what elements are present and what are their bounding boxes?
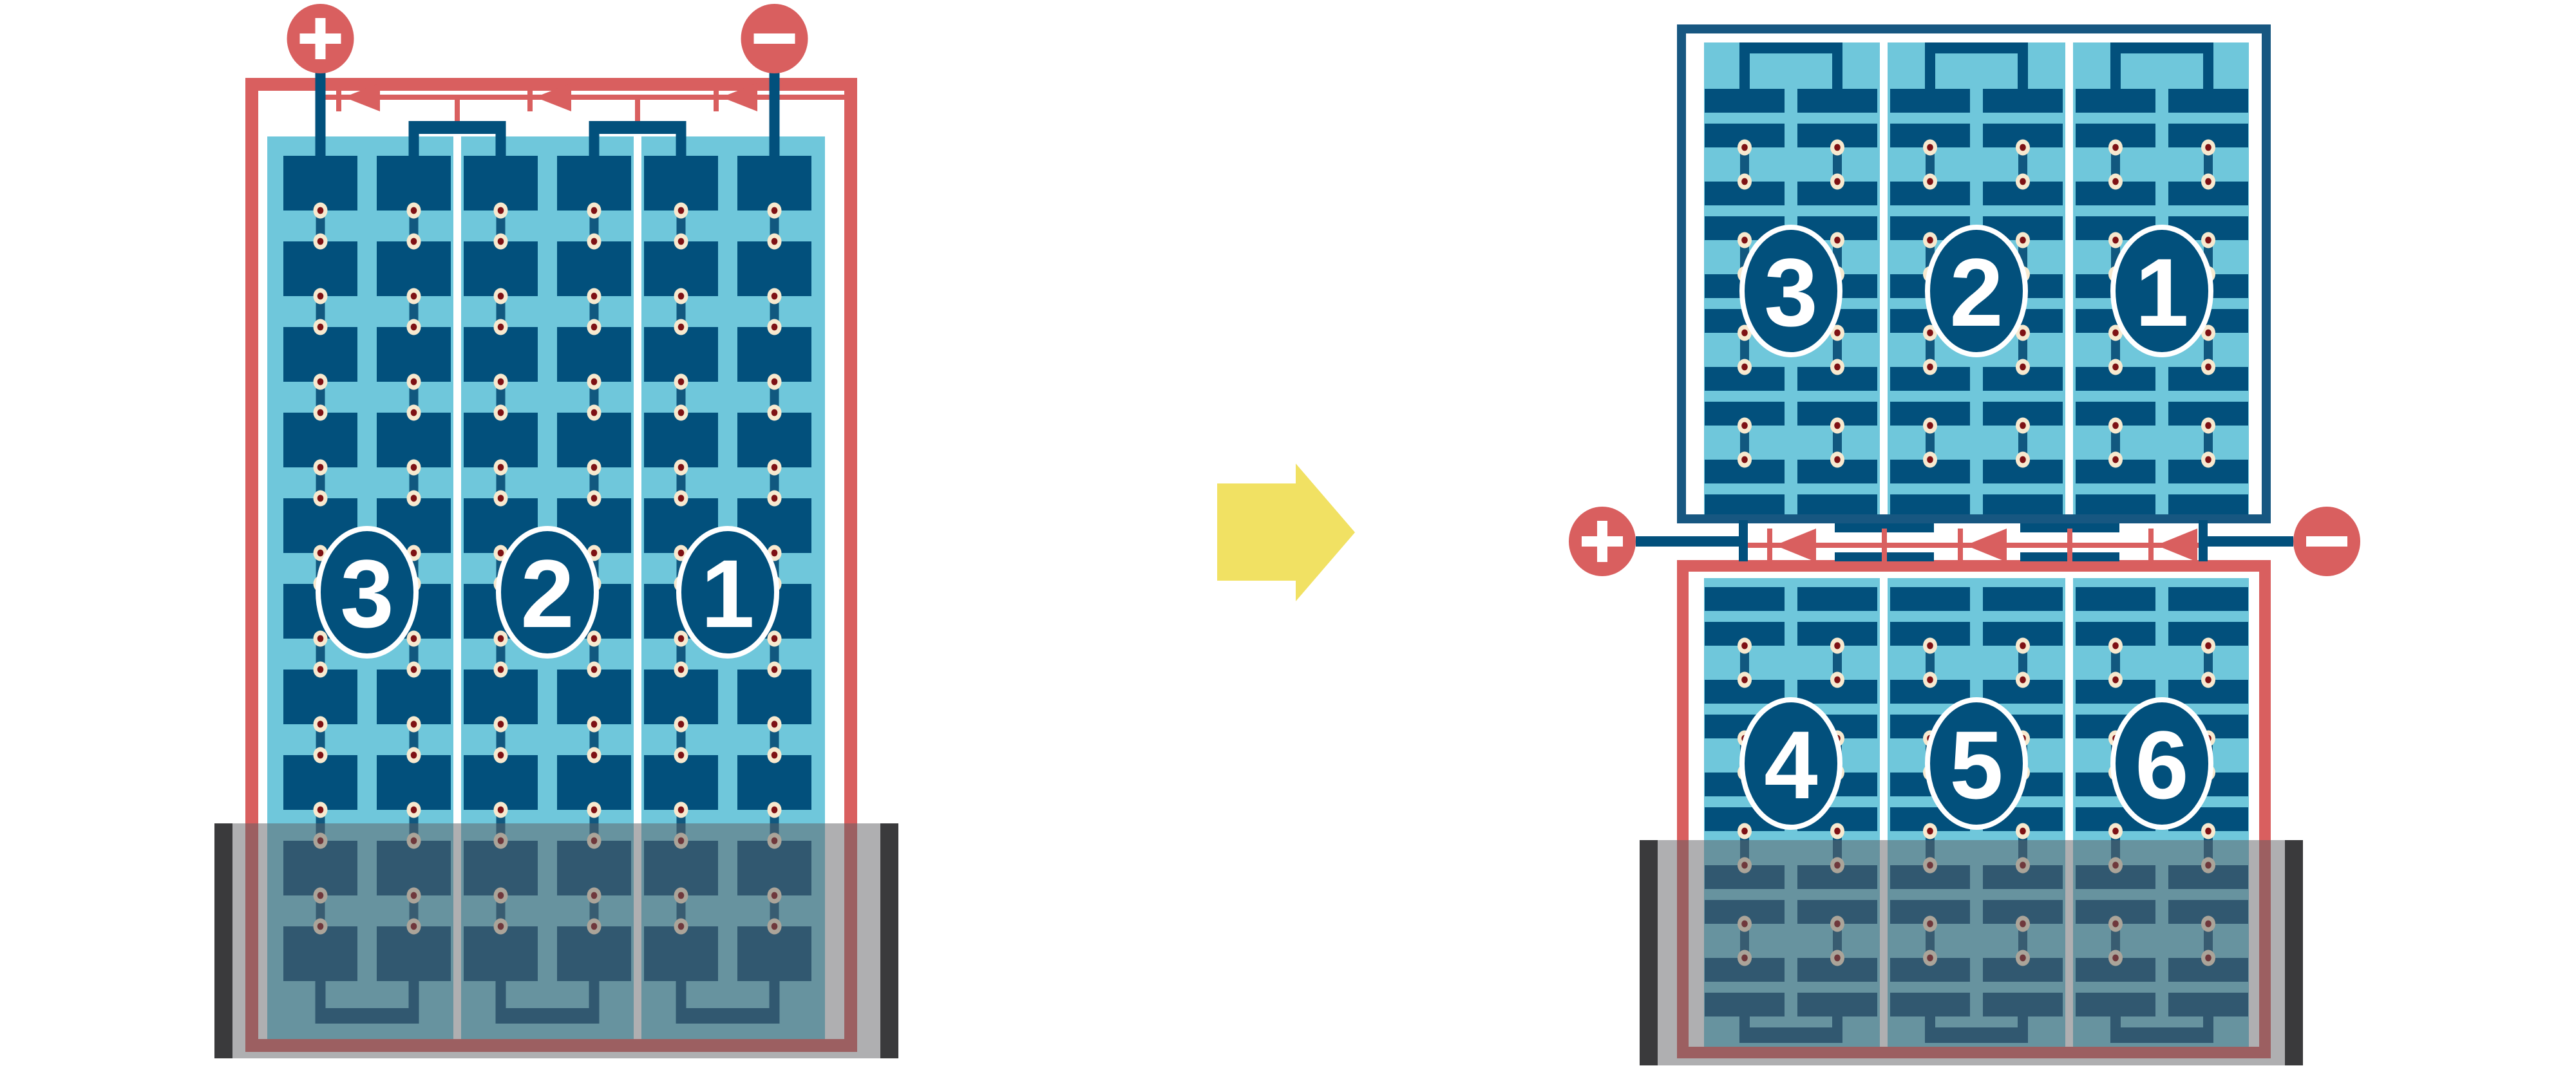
solar-cell — [557, 413, 631, 467]
solder-pad-core — [678, 324, 685, 331]
solder-pad-core — [498, 409, 504, 417]
solder-pad-core — [2020, 456, 2026, 464]
solder-pad-core — [2112, 456, 2119, 464]
right-module-bottom-half: 456 — [1640, 566, 2303, 1065]
solder-pad-core — [2112, 642, 2119, 650]
minus-icon — [2306, 536, 2347, 547]
right-arrow-icon — [1217, 464, 1355, 601]
solder-pad-core — [411, 324, 417, 331]
solder-pad-core — [1741, 422, 1748, 429]
solder-pad-core — [772, 238, 778, 245]
solder-pad-core — [772, 635, 778, 642]
solar-cell — [464, 156, 538, 211]
solder-pad-core — [772, 666, 778, 673]
solder-pad-core — [678, 293, 685, 300]
solder-pad-core — [2020, 642, 2026, 650]
solder-pad-core — [498, 464, 504, 471]
solder-pad-core — [1927, 828, 1933, 835]
solder-pad-core — [1741, 144, 1748, 151]
solder-pad-core — [591, 807, 598, 814]
solder-pad-core — [317, 238, 324, 245]
bypass-diode-cathode-bar — [2148, 529, 2154, 562]
solder-pad-core — [1741, 364, 1748, 371]
solar-cell — [377, 241, 451, 296]
solder-pad-core — [317, 721, 324, 728]
bypass-diode-cathode-bar — [527, 83, 533, 111]
substring-number-label: 6 — [2135, 711, 2188, 819]
solder-pad-core — [411, 293, 417, 300]
solder-pad-core — [772, 207, 778, 214]
string-bridge-leg — [409, 121, 419, 156]
string-bridge — [1925, 42, 2028, 53]
half-cell — [2076, 89, 2155, 113]
solder-pad-core — [2205, 828, 2211, 835]
solder-pad-core — [1834, 828, 1841, 835]
solder-pad-core — [411, 635, 417, 642]
solder-pad-core — [591, 409, 598, 417]
half-cell — [1797, 89, 1877, 113]
solder-pad-core — [317, 752, 324, 759]
solder-pad-core — [2112, 178, 2119, 185]
half-cell — [1983, 587, 2063, 611]
bus-post — [2199, 520, 2208, 561]
solar-cell — [464, 241, 538, 296]
solar-cell — [377, 670, 451, 724]
diode-tap — [635, 97, 640, 123]
solar-cell — [557, 670, 631, 724]
solar-cell — [283, 327, 357, 382]
positive-lead — [1636, 536, 1739, 547]
shade-end-bar — [2285, 840, 2303, 1065]
solder-pad-core — [411, 752, 417, 759]
transition-arrow — [1217, 464, 1355, 601]
solder-pad-core — [411, 409, 417, 417]
solder-pad-core — [2205, 364, 2211, 371]
solder-pad-core — [2020, 237, 2026, 244]
solder-pad-core — [317, 666, 324, 673]
solder-pad-core — [591, 324, 598, 331]
solar-cell — [283, 670, 357, 724]
half-cell — [2168, 587, 2248, 611]
solder-pad-core — [1927, 237, 1933, 244]
solder-pad-core — [411, 721, 417, 728]
bus-post — [1739, 520, 1748, 561]
half-cell — [2168, 89, 2248, 113]
solder-pad-core — [411, 495, 417, 502]
solder-pad-core — [1927, 178, 1933, 185]
solder-pad-core — [2112, 144, 2119, 151]
solder-pad-core — [411, 807, 417, 814]
bypass-diode-cathode-bar — [1767, 529, 1772, 562]
solder-pad-core — [411, 238, 417, 245]
solder-pad-core — [498, 666, 504, 673]
solder-pad-core — [591, 379, 598, 386]
diode-tap — [2067, 529, 2072, 562]
solder-pad-core — [411, 666, 417, 673]
half-cell — [1705, 494, 1785, 514]
solder-pad-core — [678, 666, 685, 673]
solder-pad-core — [772, 464, 778, 471]
solar-cell — [377, 327, 451, 382]
solder-pad-core — [411, 550, 417, 557]
solder-pad-core — [1741, 456, 1748, 464]
solder-pad-core — [498, 293, 504, 300]
bypass-diode-arrow — [1775, 529, 1816, 562]
solder-pad-core — [498, 207, 504, 214]
solder-pad-core — [498, 550, 504, 557]
solder-pad-core — [498, 379, 504, 386]
solar-cell — [283, 156, 357, 211]
solder-pad-core — [1834, 237, 1841, 244]
diode-tap — [455, 97, 460, 123]
solder-pad-core — [678, 238, 685, 245]
substring-number-label: 1 — [2135, 238, 2188, 346]
substring-number-label: 3 — [1764, 238, 1817, 346]
solder-pad-core — [772, 409, 778, 417]
substring-number-label: 2 — [1949, 238, 2003, 346]
solar-cell — [737, 156, 811, 211]
solder-pad-core — [1834, 642, 1841, 650]
solar-cell — [377, 156, 451, 211]
solder-pad-core — [2020, 330, 2026, 337]
solder-pad-core — [317, 464, 324, 471]
string-bridge-leg — [589, 121, 600, 156]
solar-cell — [464, 327, 538, 382]
solar-cell — [737, 241, 811, 296]
solder-pad-core — [1927, 422, 1933, 429]
solder-pad-core — [1927, 364, 1933, 371]
shade-end-bar — [1640, 840, 1658, 1065]
solder-pad-core — [2205, 456, 2211, 464]
solder-pad-core — [1834, 422, 1841, 429]
solder-pad-core — [678, 721, 685, 728]
solder-pad-core — [772, 752, 778, 759]
solder-pad-core — [1741, 642, 1748, 650]
solar-cell — [557, 156, 631, 211]
solder-pad-core — [317, 495, 324, 502]
solder-pad-core — [2112, 677, 2119, 684]
solder-pad-core — [772, 324, 778, 331]
left-module: 321 — [214, 4, 898, 1058]
solder-pad-core — [498, 752, 504, 759]
solder-pad-core — [1927, 677, 1933, 684]
shade-overlay — [1640, 840, 2303, 1065]
half-cell — [1797, 494, 1877, 514]
substring-number-label: 3 — [340, 539, 393, 648]
solar-cell — [737, 755, 811, 810]
solder-pad-core — [317, 635, 324, 642]
solder-pad-core — [1834, 144, 1841, 151]
solder-pad-core — [498, 721, 504, 728]
solar-cell — [737, 670, 811, 724]
solar-cell — [464, 413, 538, 467]
solder-pad-core — [498, 238, 504, 245]
solder-pad-core — [317, 807, 324, 814]
half-cell — [2076, 494, 2155, 514]
solder-pad-core — [591, 495, 598, 502]
solder-pad-core — [678, 495, 685, 502]
substring-number-label: 4 — [1764, 711, 1817, 819]
solar-cell — [644, 755, 718, 810]
solder-pad-core — [772, 293, 778, 300]
solder-pad-core — [317, 324, 324, 331]
solder-pad-core — [2112, 237, 2119, 244]
solder-pad-core — [772, 807, 778, 814]
solder-pad-core — [1834, 456, 1841, 464]
solder-pad-core — [498, 495, 504, 502]
string-bridge — [2110, 42, 2213, 53]
plus-icon — [300, 33, 341, 44]
solder-pad-core — [772, 721, 778, 728]
shade-end-bar — [214, 823, 232, 1058]
solder-pad-core — [2205, 237, 2211, 244]
solder-pad-core — [2205, 422, 2211, 429]
solder-pad-core — [1927, 330, 1933, 337]
solar-cell — [644, 413, 718, 467]
half-cell — [1890, 494, 1970, 514]
string-bridge-leg — [2018, 42, 2028, 89]
substring-number-label: 2 — [520, 539, 574, 648]
solder-pad-core — [772, 495, 778, 502]
solder-pad-core — [317, 550, 324, 557]
solar-cell — [283, 755, 357, 810]
solder-pad-core — [2205, 178, 2211, 185]
solder-pad-core — [1741, 330, 1748, 337]
half-cell — [1983, 494, 2063, 514]
solar-cell — [377, 755, 451, 810]
bypass-diode-cathode-bar — [336, 83, 341, 111]
solder-pad-core — [1834, 677, 1841, 684]
solder-pad-core — [317, 409, 324, 417]
solder-pad-core — [591, 464, 598, 471]
solder-pad-core — [1834, 178, 1841, 185]
solder-pad-core — [317, 379, 324, 386]
solar-cell — [464, 670, 538, 724]
bypass-diode-cathode-bar — [1958, 529, 1963, 562]
solder-pad-core — [678, 207, 685, 214]
solder-pad-core — [2112, 422, 2119, 429]
solder-pad-core — [1834, 330, 1841, 337]
half-cell — [1705, 587, 1785, 611]
solder-pad-core — [317, 293, 324, 300]
shade-overlay — [214, 823, 898, 1058]
solar-cell — [377, 413, 451, 467]
solder-pad-core — [678, 550, 685, 557]
solder-pad-core — [2205, 144, 2211, 151]
substring-separator — [1880, 42, 1888, 514]
solar-cell — [283, 241, 357, 296]
string-bridge — [409, 121, 506, 134]
solder-pad-core — [678, 752, 685, 759]
right-module-top-half: 321 — [1681, 29, 2266, 519]
solder-pad-core — [1927, 642, 1933, 650]
solder-pad-core — [2112, 330, 2119, 337]
solder-pad-core — [2020, 364, 2026, 371]
solder-pad-core — [2205, 642, 2211, 650]
bypass-diode-arrow — [1965, 529, 2007, 562]
solder-pad-core — [2020, 422, 2026, 429]
solder-pad-core — [678, 409, 685, 417]
solder-pad-core — [591, 293, 598, 300]
bypass-diode-arrow — [2156, 529, 2197, 562]
minus-icon — [754, 33, 795, 44]
solder-pad-core — [2112, 828, 2119, 835]
solder-pad-core — [772, 550, 778, 557]
solar-cell — [557, 327, 631, 382]
solder-pad-core — [591, 550, 598, 557]
diode-bus-line — [320, 95, 844, 100]
solder-pad-core — [2205, 330, 2211, 337]
solar-cell — [557, 241, 631, 296]
string-bridge-leg — [1832, 42, 1842, 89]
solder-pad-core — [591, 752, 598, 759]
solder-pad-core — [1927, 144, 1933, 151]
solar-cell — [464, 755, 538, 810]
string-bridge — [589, 121, 687, 134]
substring-number-label: 5 — [1949, 711, 2003, 819]
string-bridge-leg — [2203, 42, 2213, 89]
half-cell — [1797, 587, 1877, 611]
solder-pad-core — [678, 807, 685, 814]
string-bridge-leg — [1739, 42, 1750, 89]
half-cell — [2168, 494, 2248, 514]
string-bridge-leg — [496, 121, 506, 156]
solder-pad-core — [2020, 178, 2026, 185]
solder-pad-core — [591, 721, 598, 728]
solar-cell — [283, 413, 357, 467]
negative-lead — [2208, 536, 2293, 547]
solder-pad-core — [498, 324, 504, 331]
half-cell — [1705, 89, 1785, 113]
solder-pad-core — [591, 238, 598, 245]
solder-pad-core — [772, 379, 778, 386]
positive-lead — [316, 64, 326, 156]
solder-pad-core — [591, 666, 598, 673]
string-bridge-leg — [1925, 42, 1935, 89]
solder-pad-core — [2112, 364, 2119, 371]
solar-wiring-diagram: 321 321 456 — [0, 0, 2576, 1068]
solar-cell — [737, 413, 811, 467]
bypass-diode-cathode-bar — [714, 83, 719, 111]
solder-pad-core — [2020, 828, 2026, 835]
negative-lead — [770, 67, 780, 156]
string-bridge-leg — [676, 121, 687, 156]
solder-pad-core — [498, 807, 504, 814]
half-cell — [2076, 587, 2155, 611]
solar-cell — [644, 327, 718, 382]
half-cell — [1890, 587, 1970, 611]
solar-cell — [644, 670, 718, 724]
string-bridge-leg — [2110, 42, 2121, 89]
solder-pad-core — [1741, 677, 1748, 684]
solder-pad-core — [678, 635, 685, 642]
solder-pad-core — [1741, 237, 1748, 244]
diode-tap — [1882, 529, 1887, 562]
solder-pad-core — [498, 635, 504, 642]
solder-pad-core — [1741, 178, 1748, 185]
solar-cell — [557, 755, 631, 810]
solder-pad-core — [1927, 456, 1933, 464]
solder-pad-core — [1834, 364, 1841, 371]
substring-number-label: 1 — [701, 539, 754, 648]
solar-cell — [737, 327, 811, 382]
shade-end-bar — [880, 823, 898, 1058]
solder-pad-core — [678, 379, 685, 386]
solder-pad-core — [411, 464, 417, 471]
solar-cell — [644, 156, 718, 211]
diagram-stage: 321 321 456 — [0, 0, 2576, 1068]
solar-cell — [644, 241, 718, 296]
plus-icon — [1582, 536, 1623, 547]
solder-pad-core — [2205, 677, 2211, 684]
half-cell — [1983, 89, 2063, 113]
solder-pad-core — [411, 207, 417, 214]
substring-separator — [2065, 42, 2073, 514]
solder-pad-core — [591, 207, 598, 214]
string-bridge — [1739, 42, 1842, 53]
half-cell — [1890, 89, 1970, 113]
solder-pad-core — [2020, 144, 2026, 151]
solder-pad-core — [411, 379, 417, 386]
solder-pad-core — [678, 464, 685, 471]
solder-pad-core — [591, 635, 598, 642]
solder-pad-core — [2020, 677, 2026, 684]
solder-pad-core — [317, 207, 324, 214]
solder-pad-core — [1741, 828, 1748, 835]
